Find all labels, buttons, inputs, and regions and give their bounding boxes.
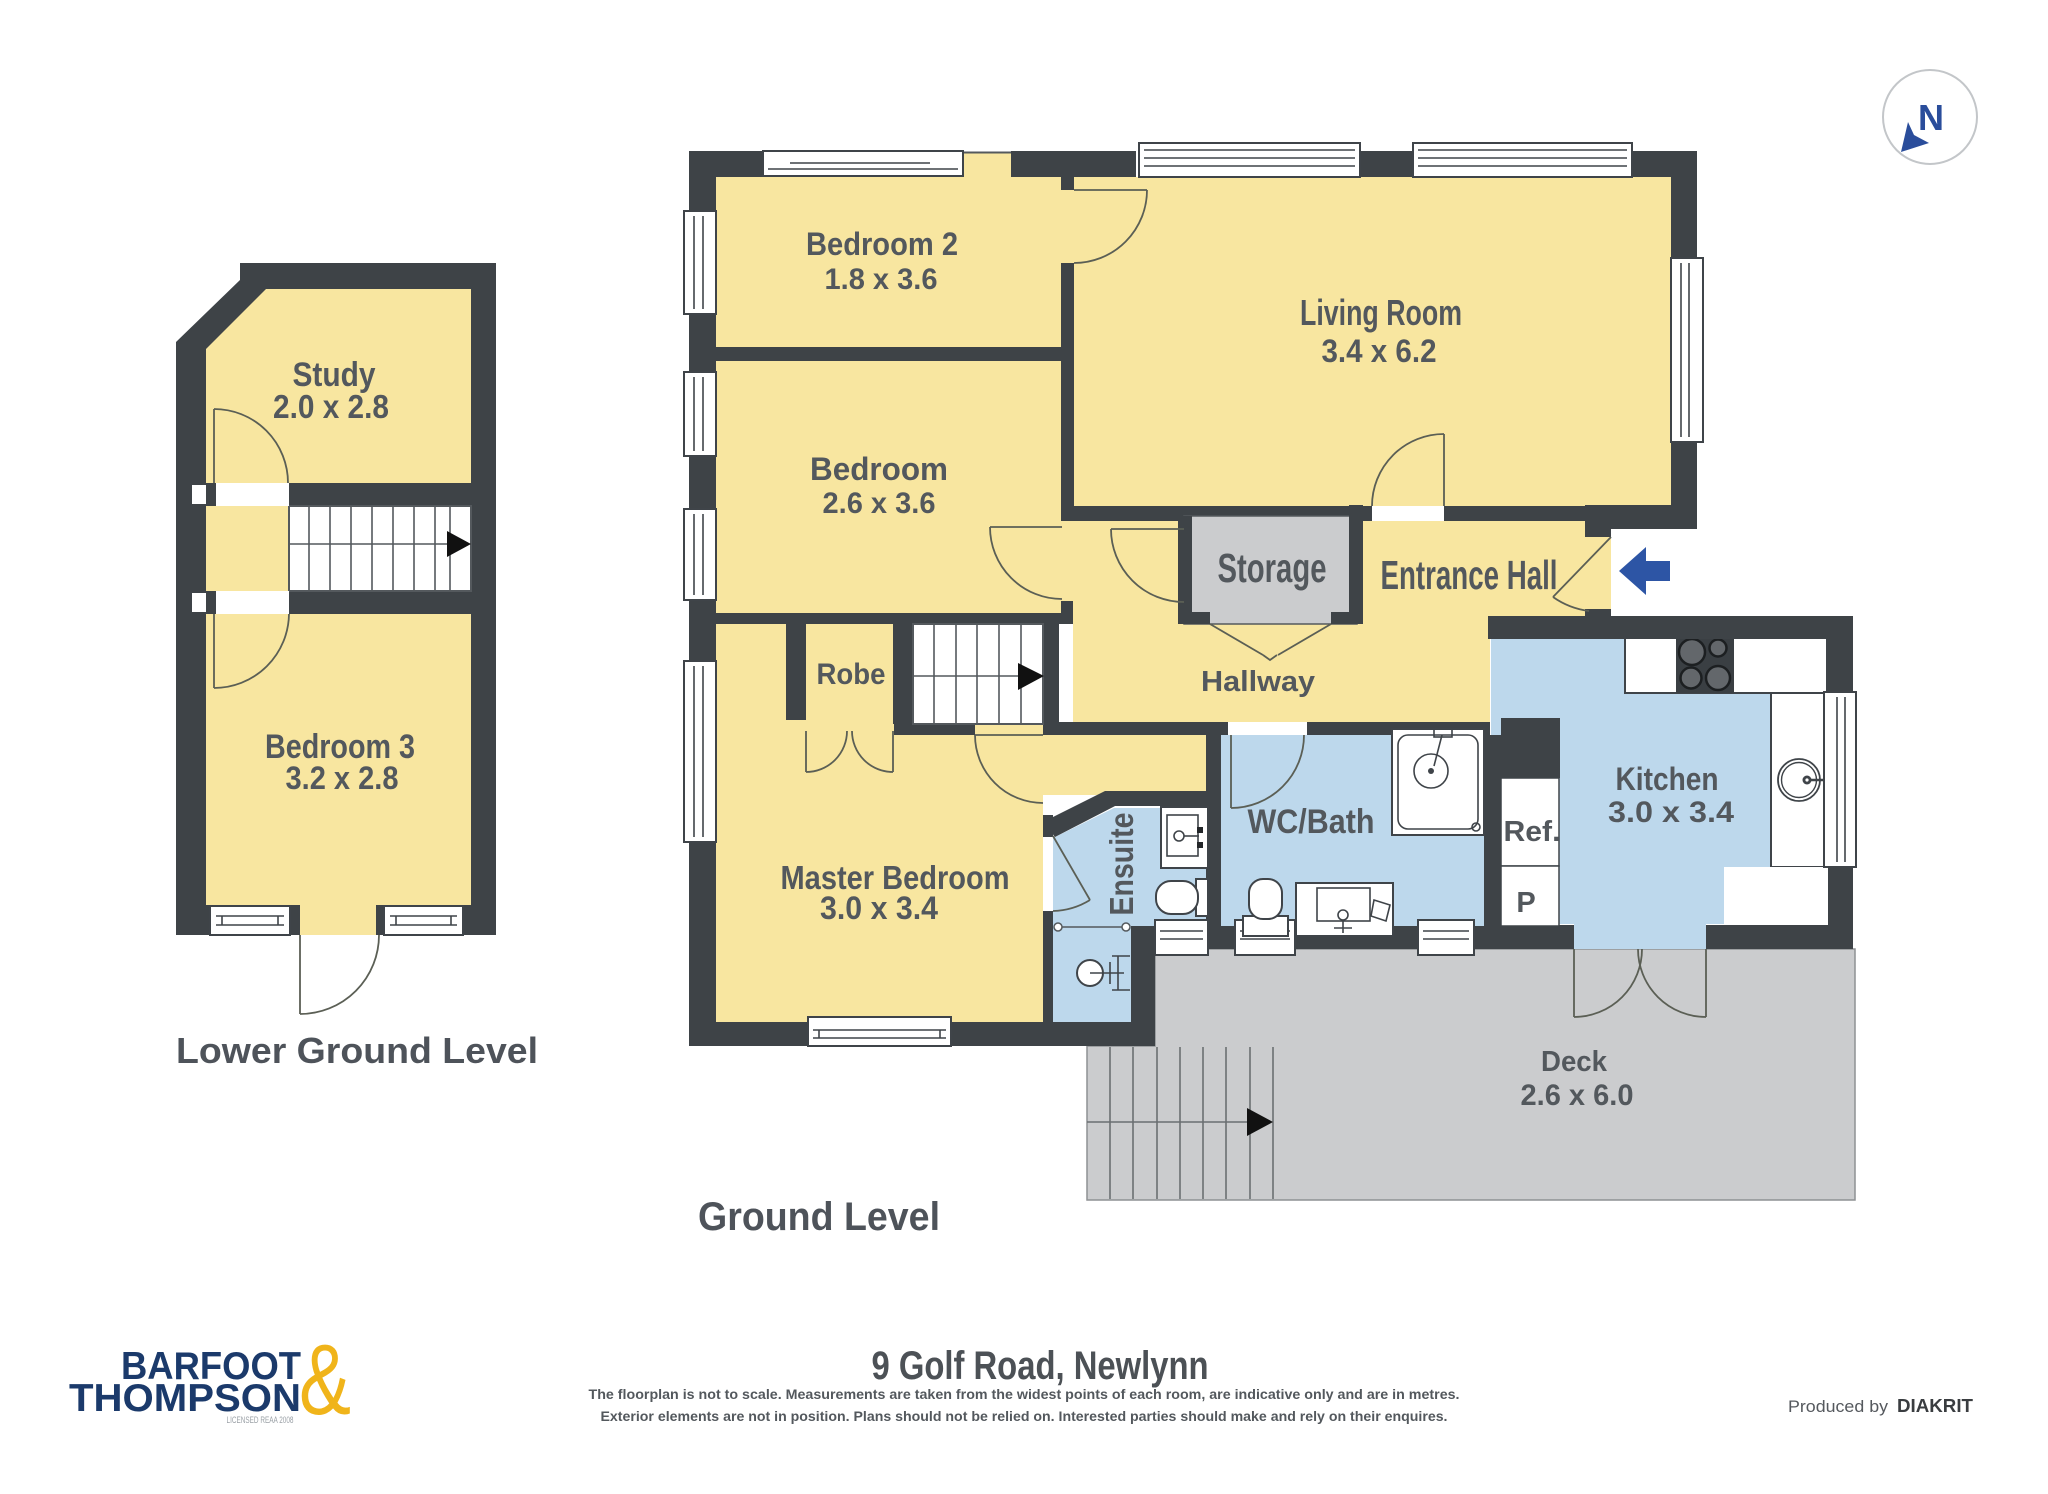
svg-text:Storage: Storage bbox=[1218, 545, 1327, 591]
svg-text:2.0 x 2.8: 2.0 x 2.8 bbox=[273, 388, 389, 425]
svg-text:Living Room: Living Room bbox=[1300, 292, 1462, 333]
svg-text:Produced by: Produced by bbox=[1788, 1397, 1889, 1416]
svg-text:N: N bbox=[1918, 97, 1944, 138]
svg-text:2.6 x 6.0: 2.6 x 6.0 bbox=[1521, 1079, 1634, 1112]
svg-text:3.0 x 3.4: 3.0 x 3.4 bbox=[1608, 796, 1734, 829]
svg-text:LICENSED REAA 2008: LICENSED REAA 2008 bbox=[227, 1415, 294, 1425]
svg-text:Deck: Deck bbox=[1541, 1046, 1608, 1078]
svg-text:3.0 x 3.4: 3.0 x 3.4 bbox=[820, 890, 938, 926]
svg-text:P: P bbox=[1516, 887, 1535, 919]
svg-text:Kitchen: Kitchen bbox=[1616, 761, 1719, 797]
svg-text:3.4 x 6.2: 3.4 x 6.2 bbox=[1322, 333, 1437, 369]
svg-text:Ground Level: Ground Level bbox=[698, 1195, 940, 1239]
svg-text:The floorplan is not to scale.: The floorplan is not to scale. Measureme… bbox=[589, 1386, 1460, 1402]
svg-text:9 Golf Road, Newlynn: 9 Golf Road, Newlynn bbox=[872, 1344, 1209, 1388]
svg-text:Bedroom 2: Bedroom 2 bbox=[806, 226, 958, 262]
svg-text:3.2 x 2.8: 3.2 x 2.8 bbox=[286, 760, 399, 796]
svg-text:Ref.: Ref. bbox=[1504, 816, 1561, 848]
svg-text:Bedroom: Bedroom bbox=[810, 451, 948, 487]
svg-text:Ensuite: Ensuite bbox=[1103, 813, 1140, 916]
svg-text:Hallway: Hallway bbox=[1201, 666, 1315, 698]
svg-text:Lower Ground Level: Lower Ground Level bbox=[176, 1030, 538, 1071]
svg-text:&: & bbox=[299, 1324, 351, 1436]
svg-text:WC/Bath: WC/Bath bbox=[1248, 803, 1375, 841]
svg-text:Robe: Robe bbox=[817, 658, 886, 691]
svg-text:THOMPSON: THOMPSON bbox=[69, 1377, 301, 1420]
svg-text:Entrance Hall: Entrance Hall bbox=[1381, 552, 1558, 598]
svg-text:2.6 x 3.6: 2.6 x 3.6 bbox=[823, 487, 936, 520]
svg-text:1.8 x 3.6: 1.8 x 3.6 bbox=[825, 263, 938, 296]
svg-text:Exterior elements are not in p: Exterior elements are not in position. P… bbox=[601, 1408, 1448, 1424]
svg-text:DIAKRIT: DIAKRIT bbox=[1897, 1396, 1973, 1416]
